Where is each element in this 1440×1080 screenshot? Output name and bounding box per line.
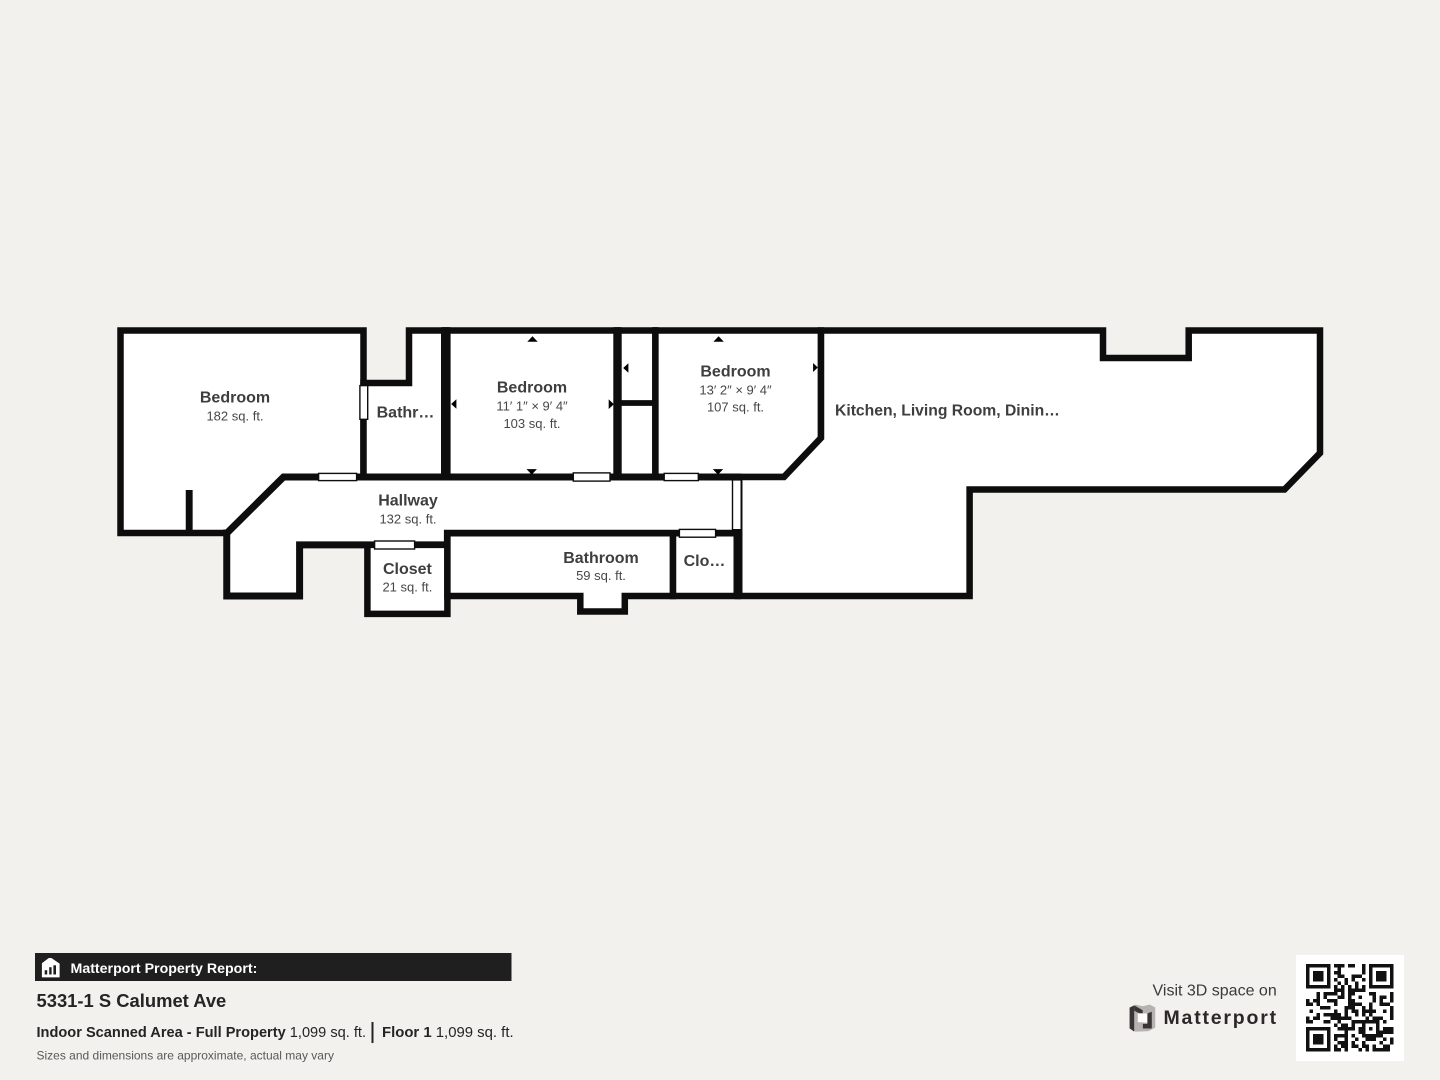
svg-text:Kitchen, Living Room, Dinin…: Kitchen, Living Room, Dinin… <box>835 403 1060 420</box>
svg-text:13′ 2″ × 9′ 4″: 13′ 2″ × 9′ 4″ <box>699 382 772 397</box>
svg-text:182 sq. ft.: 182 sq. ft. <box>206 409 263 424</box>
svg-text:Bedroom: Bedroom <box>200 390 270 407</box>
svg-text:Clo…: Clo… <box>684 553 726 570</box>
svg-text:107 sq. ft.: 107 sq. ft. <box>707 400 764 415</box>
svg-text:59 sq. ft.: 59 sq. ft. <box>576 568 626 583</box>
svg-text:Bedroom: Bedroom <box>700 364 770 381</box>
svg-text:Sizes and dimensions are appro: Sizes and dimensions are approximate, ac… <box>37 1049 334 1063</box>
svg-text:132 sq. ft.: 132 sq. ft. <box>379 511 436 526</box>
svg-text:Matterport Property Report:: Matterport Property Report: <box>71 961 258 977</box>
svg-text:Bathr…: Bathr… <box>377 405 435 422</box>
svg-text:11′ 1″ × 9′ 4″: 11′ 1″ × 9′ 4″ <box>496 399 568 414</box>
svg-text:Visit 3D space on: Visit 3D space on <box>1153 983 1277 1000</box>
svg-text:Floor 1 1,099 sq. ft.: Floor 1 1,099 sq. ft. <box>382 1025 514 1041</box>
svg-text:Indoor Scanned Area - Full Pro: Indoor Scanned Area - Full Property 1,09… <box>37 1025 367 1041</box>
svg-text:Hallway: Hallway <box>378 493 438 510</box>
svg-text:5331-1 S Calumet Ave: 5331-1 S Calumet Ave <box>37 990 227 1011</box>
svg-text:103 sq. ft.: 103 sq. ft. <box>503 416 560 431</box>
svg-text:Matterport: Matterport <box>1164 1007 1278 1029</box>
svg-text:Closet: Closet <box>383 561 433 578</box>
svg-text:21 sq. ft.: 21 sq. ft. <box>382 579 432 594</box>
svg-text:Bedroom: Bedroom <box>497 380 567 397</box>
svg-text:Bathroom: Bathroom <box>563 550 639 567</box>
